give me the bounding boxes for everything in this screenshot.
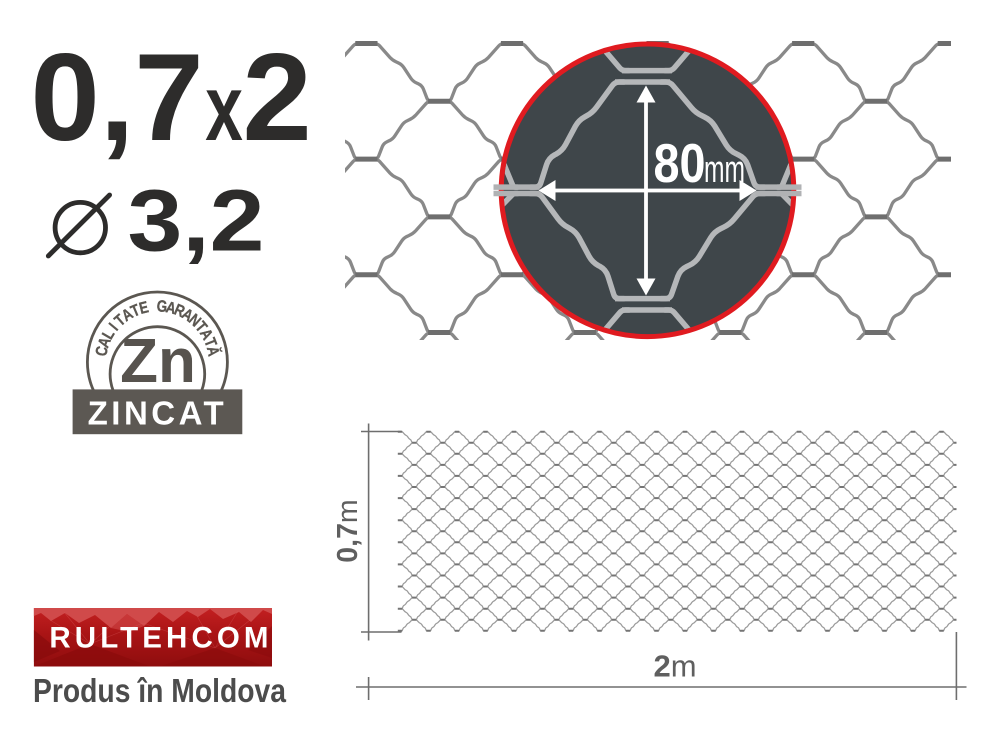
svg-text:Produs în Moldova: Produs în Moldova	[33, 673, 286, 710]
svg-text:0,7m: 0,7m	[332, 499, 364, 562]
svg-text:2m: 2m	[654, 648, 697, 683]
svg-text:Zn: Zn	[120, 327, 196, 396]
svg-text:RULTEHCOM: RULTEHCOM	[49, 622, 272, 655]
svg-text:x: x	[205, 56, 243, 160]
svg-text:mm: mm	[704, 149, 745, 191]
svg-text:0,7: 0,7	[31, 28, 204, 167]
svg-text:80: 80	[654, 133, 706, 194]
svg-text:2: 2	[243, 28, 312, 167]
svg-text:3,2: 3,2	[128, 173, 265, 270]
svg-text:ZINCAT: ZINCAT	[88, 395, 228, 432]
